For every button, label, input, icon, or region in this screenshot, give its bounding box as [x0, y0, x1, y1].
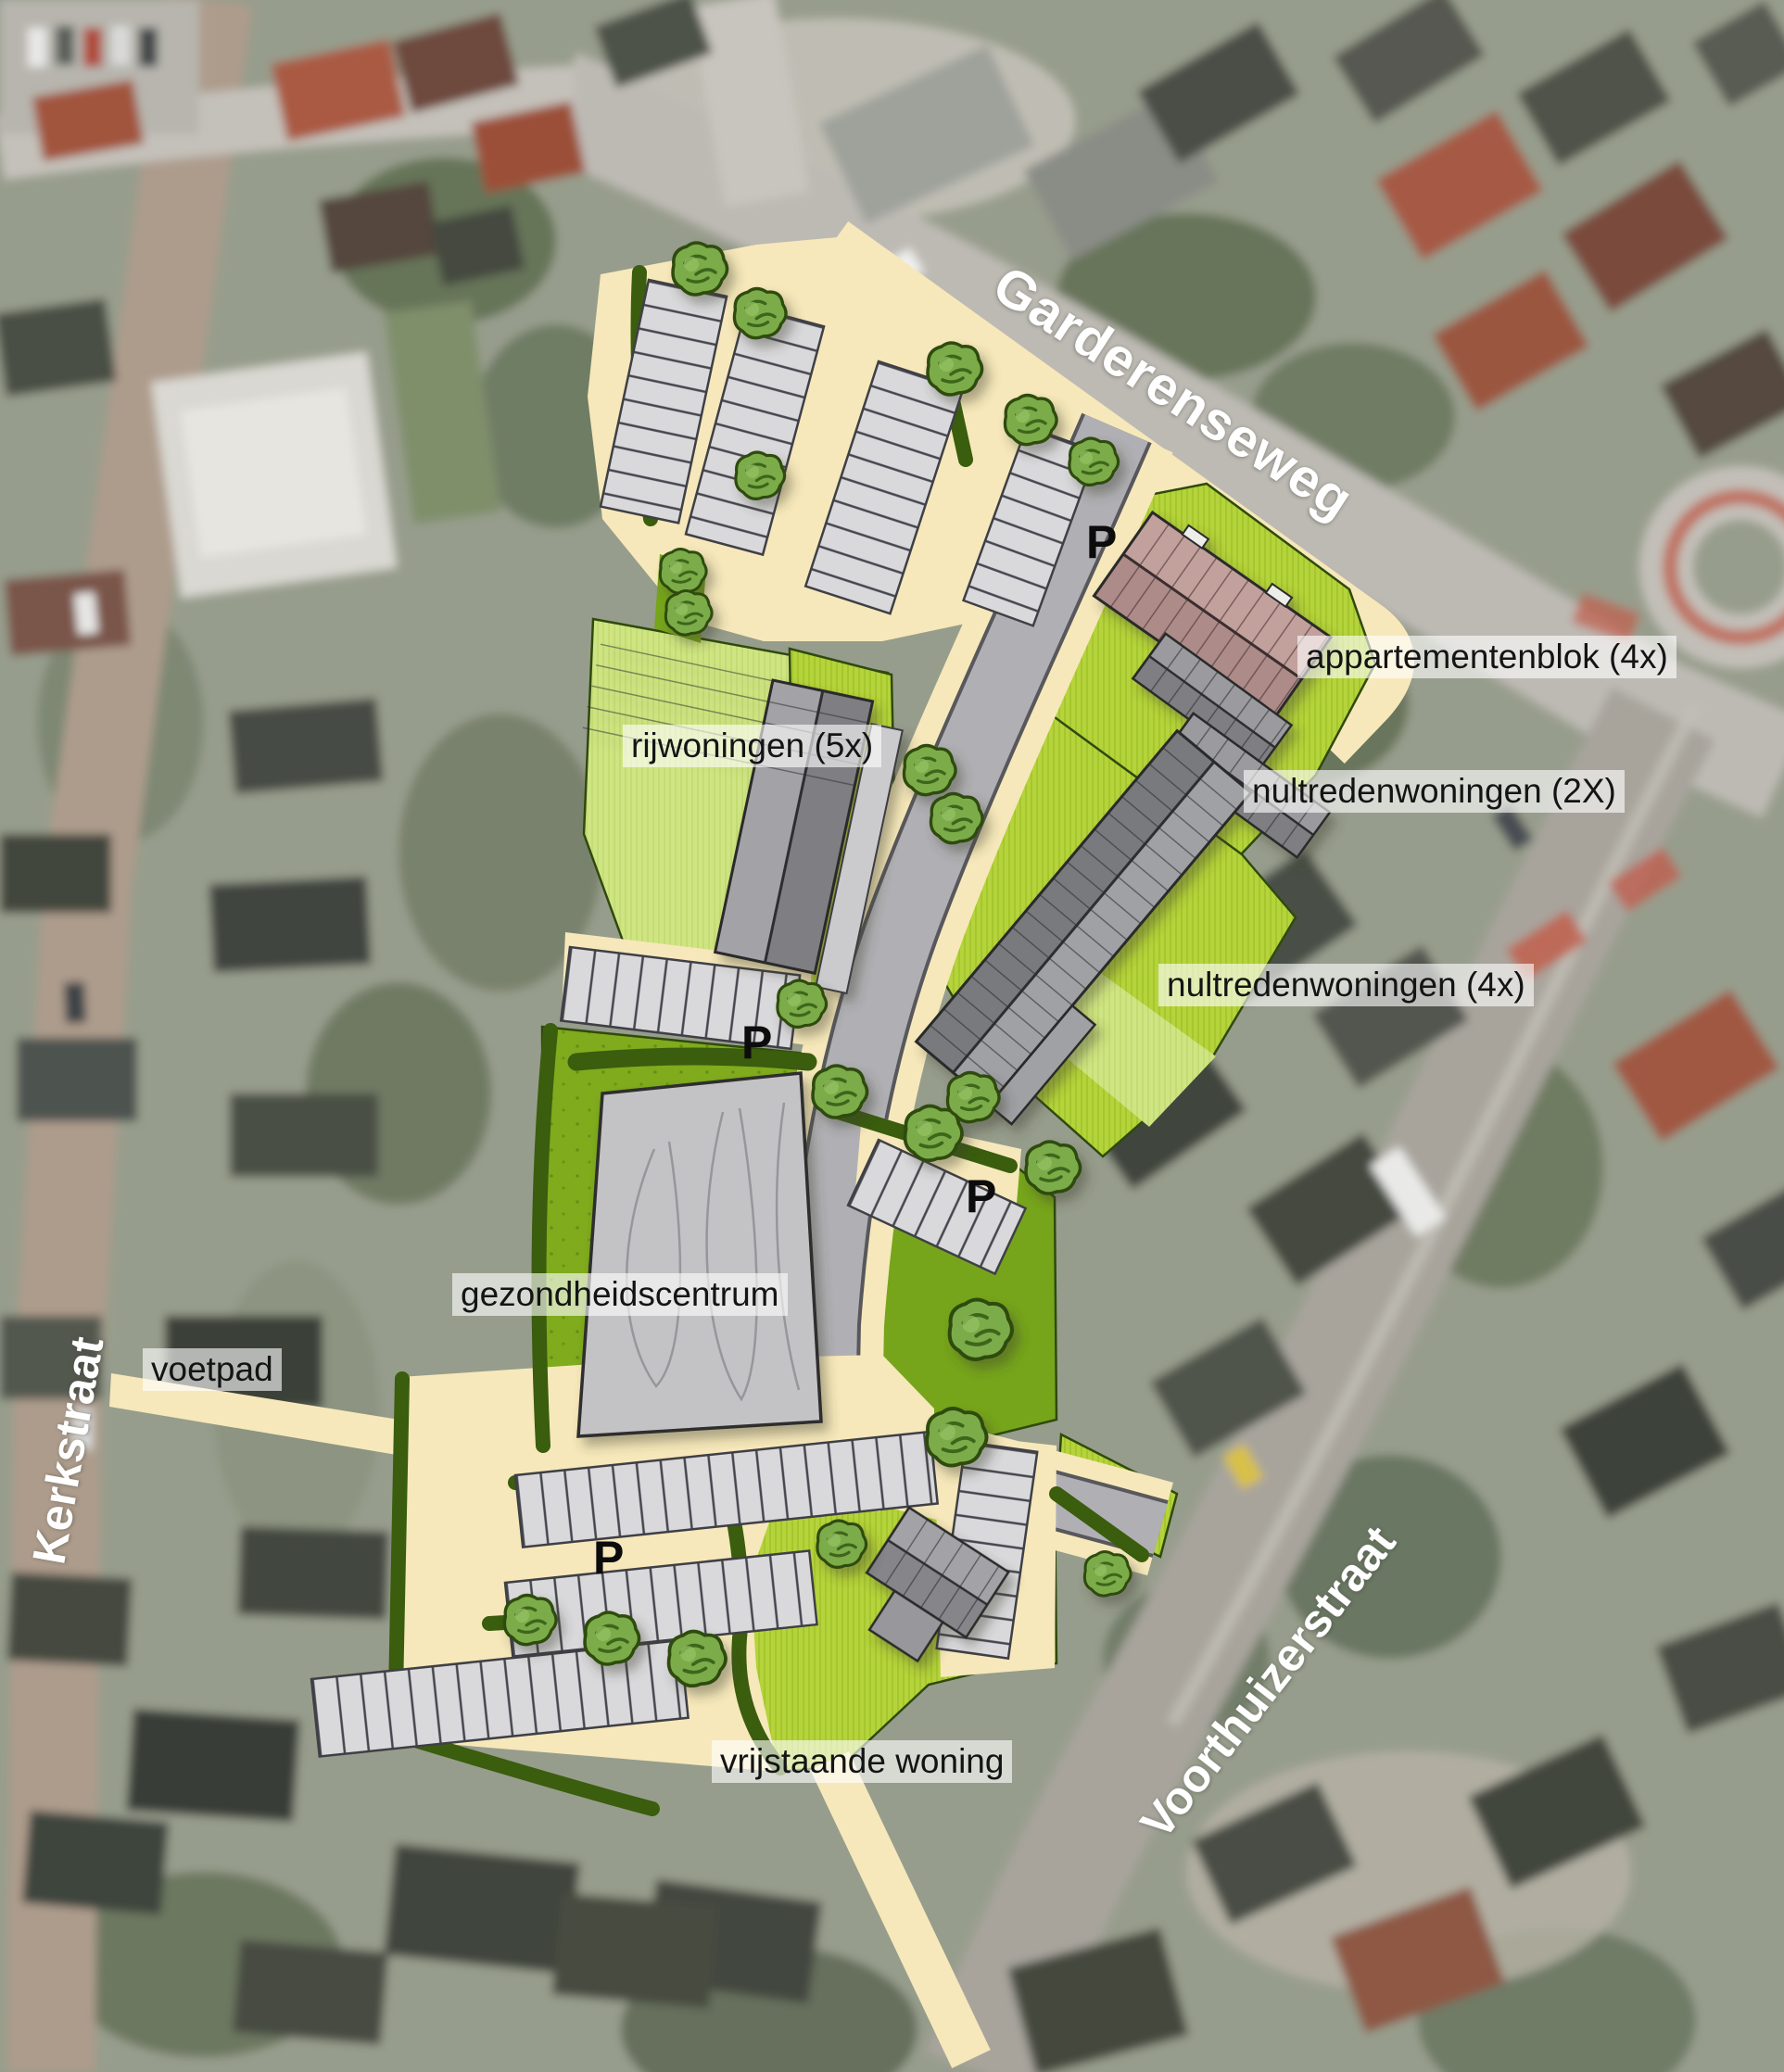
tree	[660, 550, 706, 594]
label-appartementenblok: appartementenblok (4x)	[1297, 636, 1676, 678]
tree	[813, 1066, 867, 1118]
parking-marker-mid-left: P	[741, 1016, 772, 1069]
parking-marker-south: P	[593, 1531, 624, 1585]
tree	[1084, 1552, 1131, 1597]
label-rijwoningen: rijwoningen (5x)	[623, 725, 881, 767]
tree	[1005, 396, 1056, 445]
tree	[904, 746, 955, 795]
health-center-building	[578, 1073, 821, 1436]
label-vrijstaande-woning: vrijstaande woning	[712, 1740, 1012, 1783]
tree	[734, 289, 786, 338]
tree	[928, 343, 982, 395]
tree	[673, 243, 728, 295]
tree	[669, 1632, 726, 1687]
tree	[927, 1409, 986, 1466]
tree	[778, 980, 827, 1027]
label-nultredenwoningen-4x: nultredenwoningen (4x)	[1158, 964, 1534, 1006]
label-voetpad: voetpad	[143, 1348, 282, 1391]
tree	[1069, 438, 1119, 485]
tree	[736, 452, 785, 499]
tree	[665, 591, 712, 636]
tree	[1026, 1142, 1081, 1194]
tree	[930, 794, 982, 843]
tree	[950, 1300, 1012, 1359]
tree	[585, 1612, 639, 1664]
label-nultredenwoningen-2x: nultredenwoningen (2X)	[1244, 770, 1625, 813]
label-gezondheidscentrum: gezondheidscentrum	[452, 1273, 788, 1316]
tree	[504, 1596, 556, 1645]
tree	[817, 1521, 867, 1567]
site-plan-map: Garderenseweg Kerkstraat Voorthuizerstra…	[0, 0, 1784, 2072]
parking-marker-north: P	[1086, 515, 1117, 569]
tree	[947, 1073, 999, 1122]
parking-marker-mid: P	[966, 1169, 996, 1223]
